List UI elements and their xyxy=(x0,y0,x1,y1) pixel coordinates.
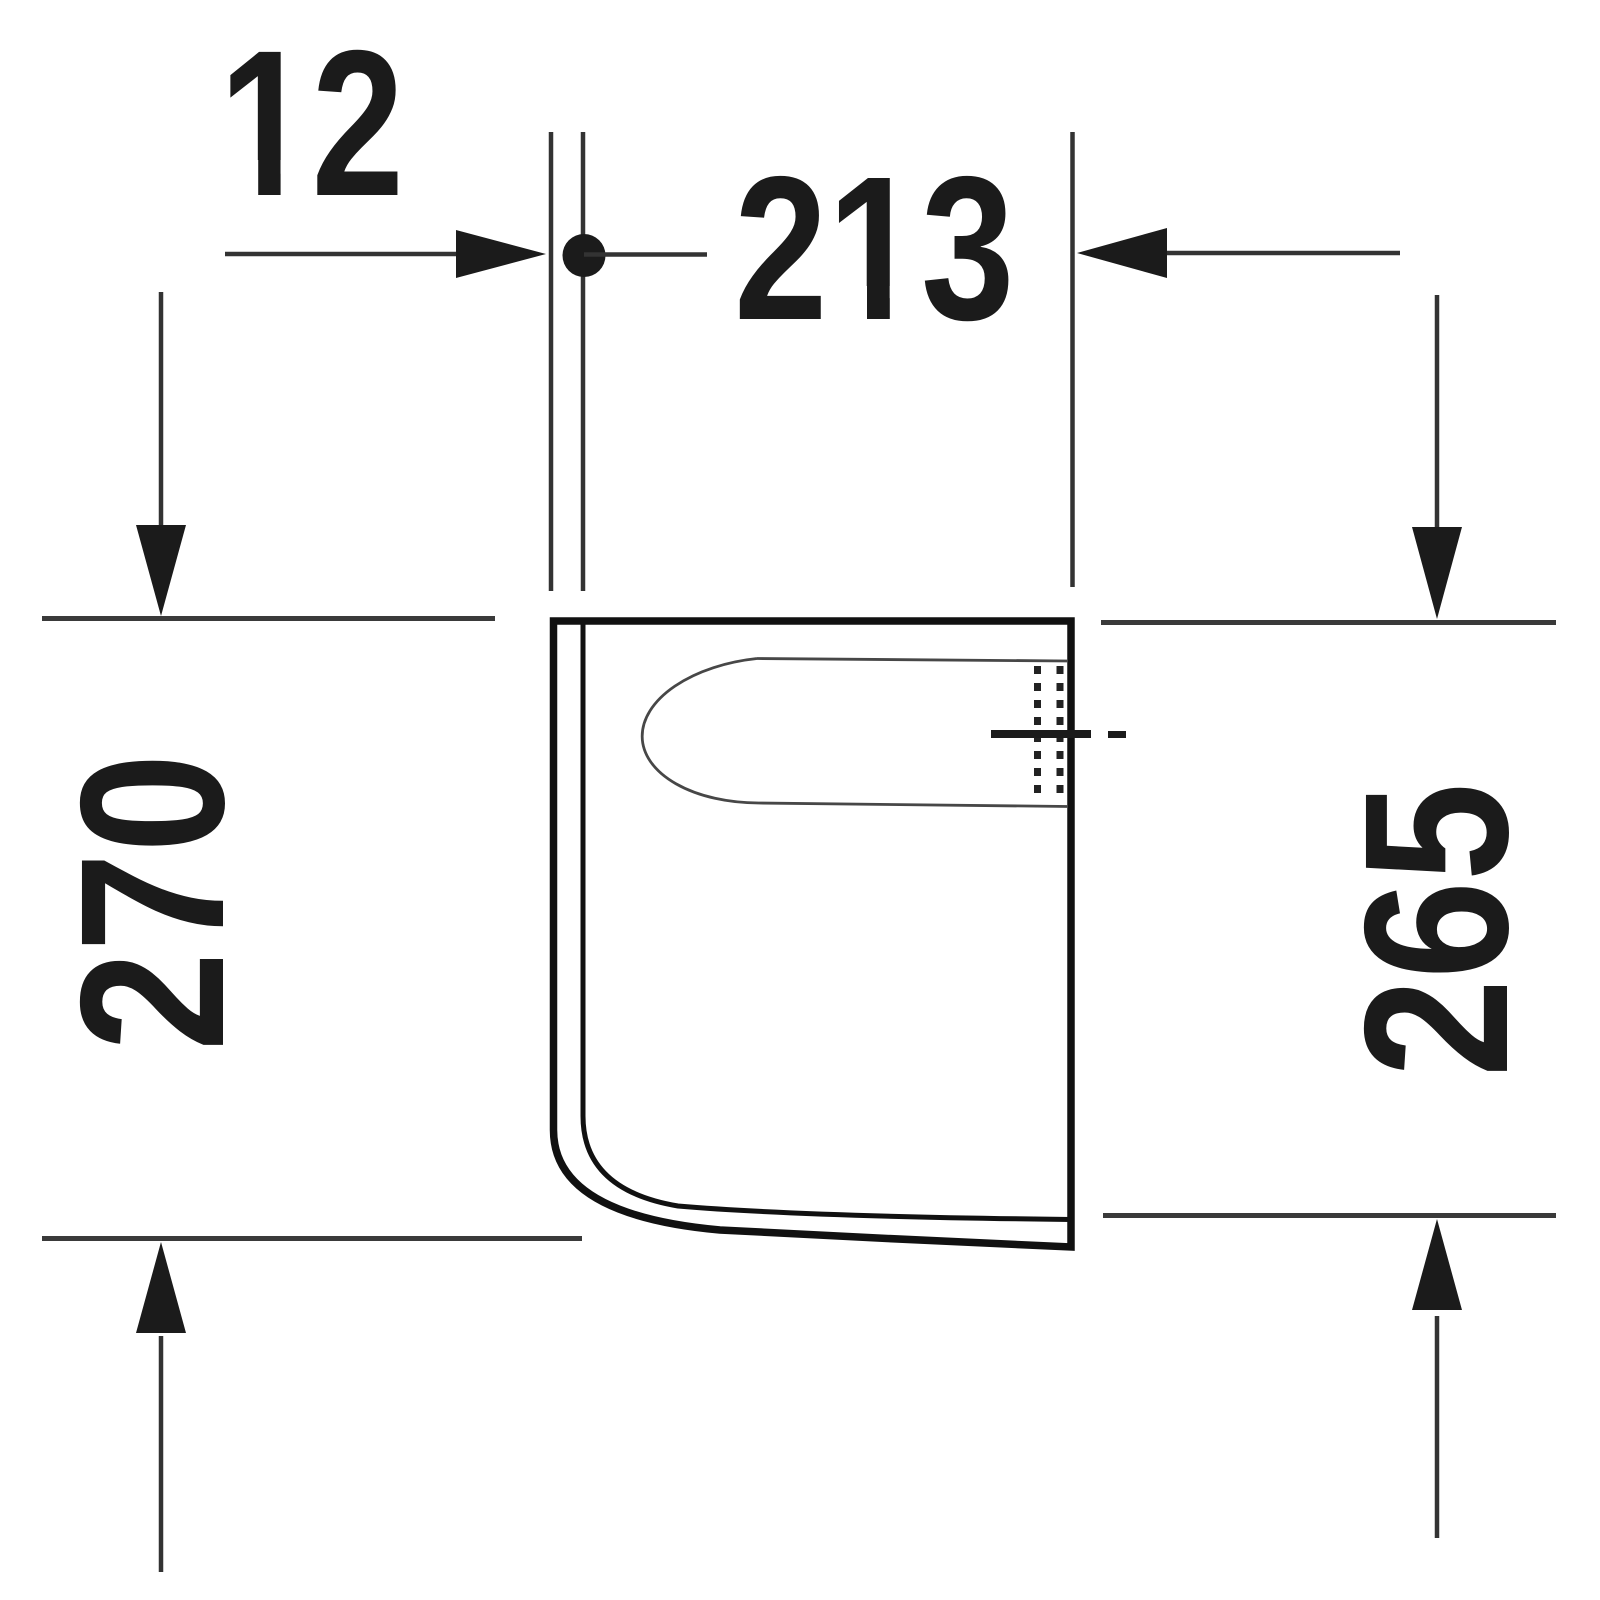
svg-text:265: 265 xyxy=(1322,783,1551,1077)
svg-text:12: 12 xyxy=(219,6,404,239)
svg-text:270: 270 xyxy=(37,753,266,1051)
svg-text:213: 213 xyxy=(734,133,1014,363)
